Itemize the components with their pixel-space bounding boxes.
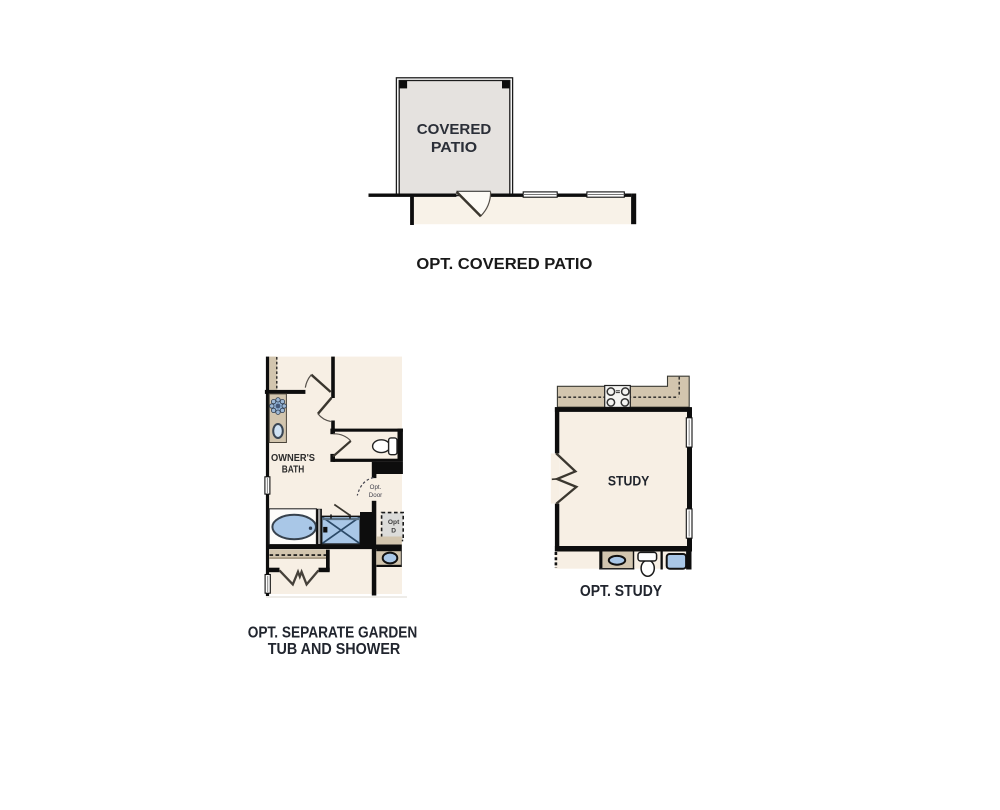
svg-text:PATIO: PATIO (431, 140, 477, 156)
svg-text:COVERED: COVERED (417, 122, 492, 138)
svg-text:OPT. STUDY: OPT. STUDY (580, 583, 663, 600)
svg-text:OPT. COVERED PATIO: OPT. COVERED PATIO (416, 256, 592, 273)
svg-text:Opt.: Opt. (370, 484, 382, 491)
svg-text:OWNER'S: OWNER'S (271, 453, 315, 464)
svg-text:TUB AND SHOWER: TUB AND SHOWER (268, 641, 401, 658)
svg-text:D: D (391, 528, 396, 535)
svg-text:OPT. SEPARATE GARDEN: OPT. SEPARATE GARDEN (248, 624, 418, 641)
svg-text:BATH: BATH (282, 465, 305, 476)
svg-text:STUDY: STUDY (608, 473, 650, 489)
svg-text:Opt: Opt (388, 519, 400, 526)
svg-text:Door: Door (369, 492, 382, 499)
